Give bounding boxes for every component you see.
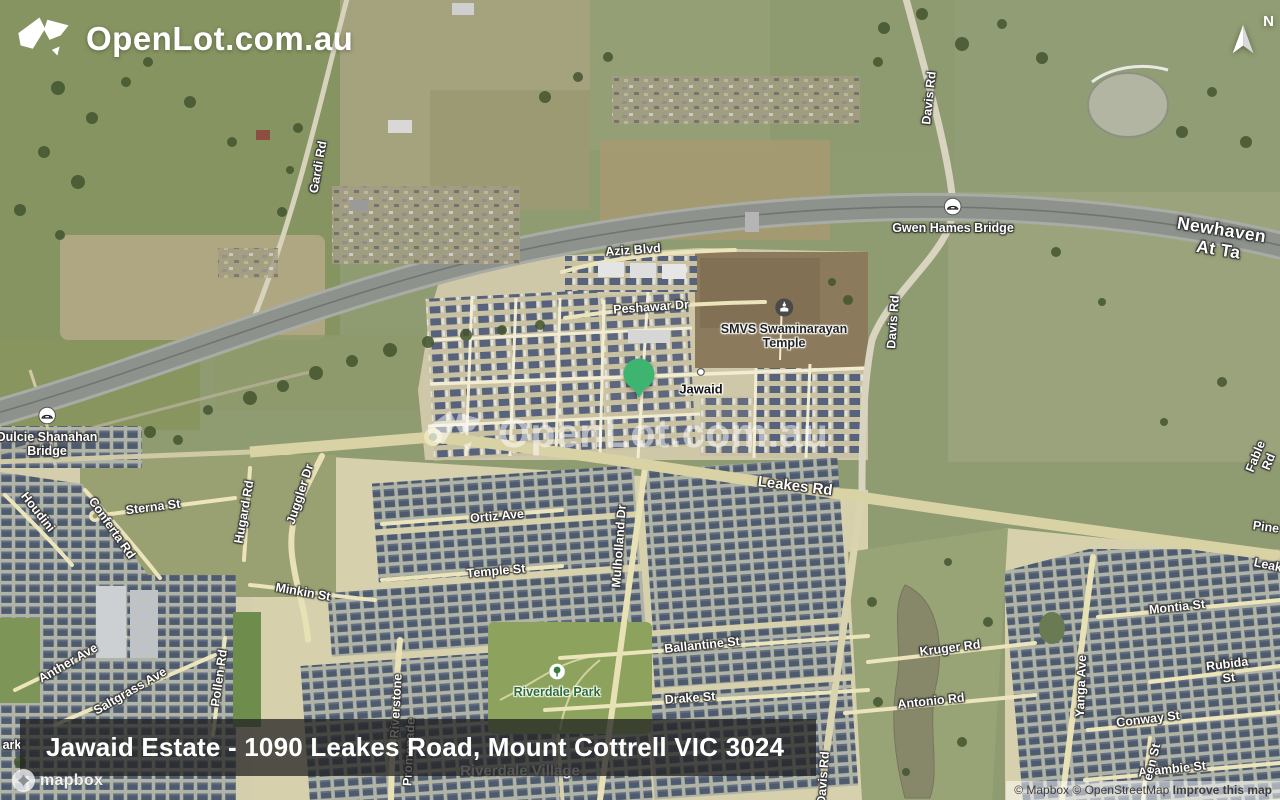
osm-attribution-link[interactable]: © OpenStreetMap bbox=[1072, 783, 1169, 797]
mapbox-logo-text: mapbox bbox=[40, 772, 103, 790]
estate-caption-banner: Jawaid Estate - 1090 Leakes Road, Mount … bbox=[20, 719, 816, 776]
compass-north: N bbox=[1228, 15, 1274, 61]
map-view[interactable]: Gardi RdDavis RdGwen Hames BridgeNewhave… bbox=[0, 0, 1280, 800]
north-arrow-icon bbox=[1230, 23, 1260, 57]
map-attribution: © Mapbox © OpenStreetMap Improve this ma… bbox=[1006, 781, 1280, 800]
openlot-logo: OpenLot.com.au bbox=[15, 13, 353, 65]
openlot-logo-text: OpenLot.com.au bbox=[86, 20, 353, 58]
mapbox-logo-icon bbox=[12, 769, 35, 792]
estate-caption-title: Jawaid Estate - 1090 Leakes Road, Mount … bbox=[20, 732, 784, 763]
openlot-logo-icon bbox=[15, 13, 73, 65]
improve-map-link[interactable]: Improve this map bbox=[1173, 783, 1272, 797]
mapbox-logo[interactable]: mapbox bbox=[12, 769, 103, 792]
map-marker-pin[interactable] bbox=[622, 358, 656, 400]
compass-label: N bbox=[1263, 13, 1274, 30]
mapbox-attribution-link[interactable]: © Mapbox bbox=[1014, 783, 1069, 797]
